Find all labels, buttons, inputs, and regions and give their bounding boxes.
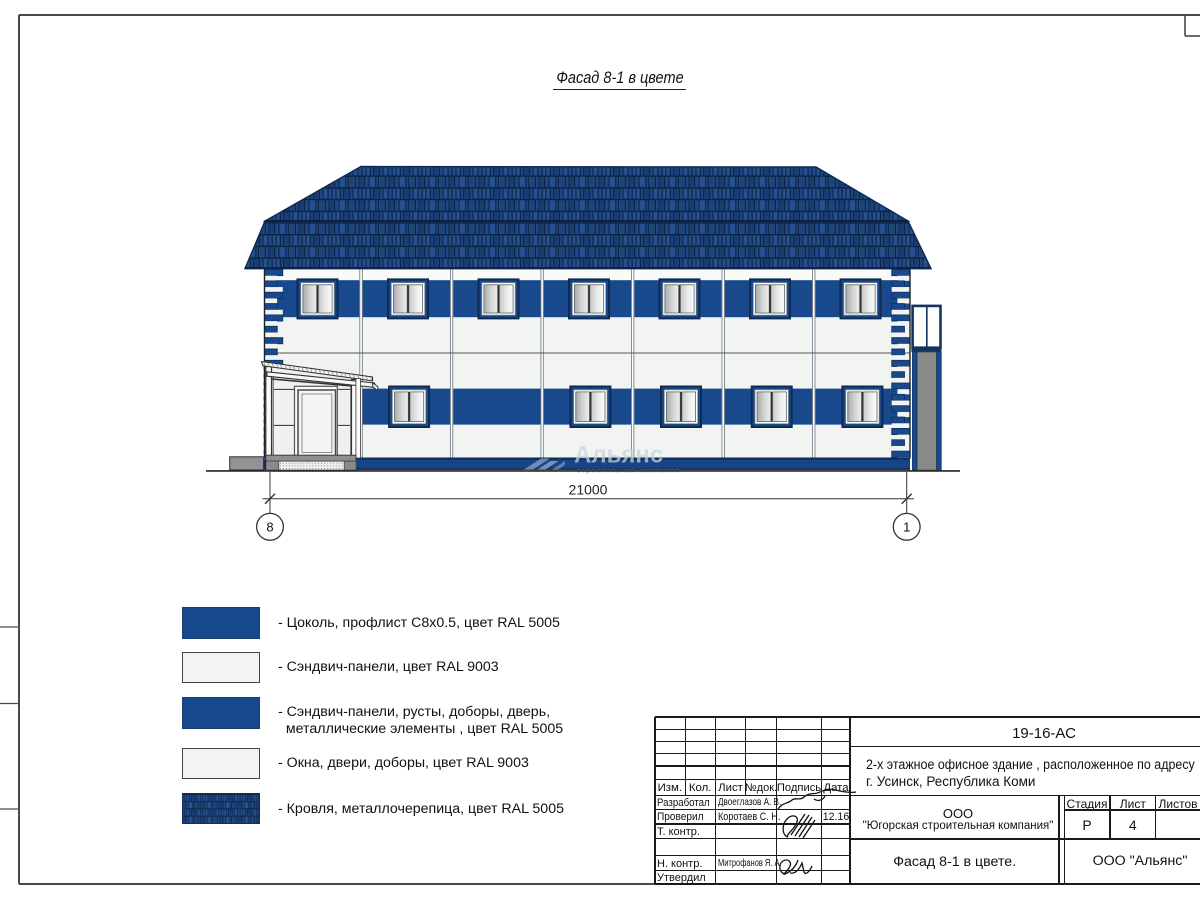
svg-text:8: 8 xyxy=(266,520,273,535)
svg-text:1: 1 xyxy=(903,520,910,535)
svg-text:21000: 21000 xyxy=(569,482,608,498)
svg-text:Альянс: Альянс xyxy=(574,442,663,469)
